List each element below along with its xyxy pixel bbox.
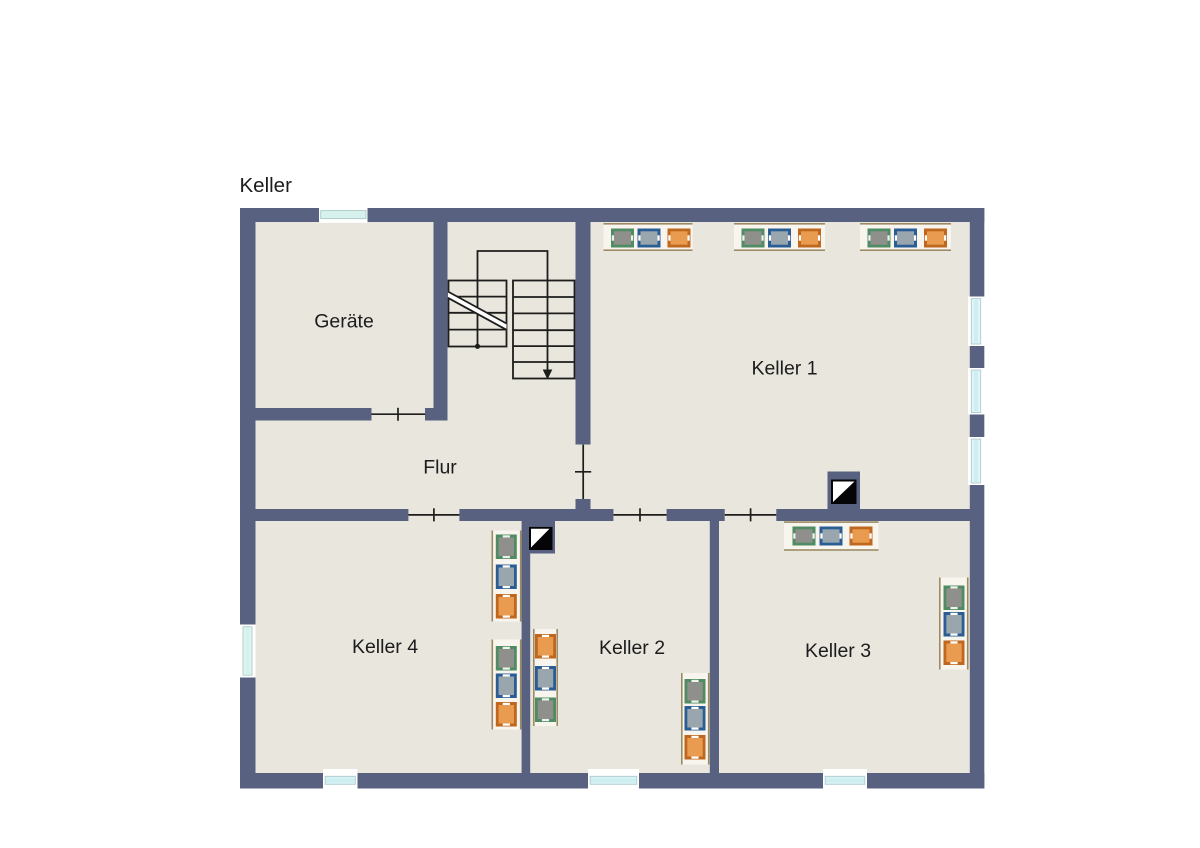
svg-text:Keller 1: Keller 1	[751, 357, 817, 379]
svg-text:Keller: Keller	[240, 174, 293, 197]
svg-text:Flur: Flur	[423, 456, 457, 478]
svg-text:Keller 4: Keller 4	[352, 636, 418, 658]
svg-text:Keller 2: Keller 2	[599, 637, 665, 659]
svg-text:Keller 3: Keller 3	[805, 640, 871, 662]
svg-text:Geräte: Geräte	[314, 311, 374, 333]
